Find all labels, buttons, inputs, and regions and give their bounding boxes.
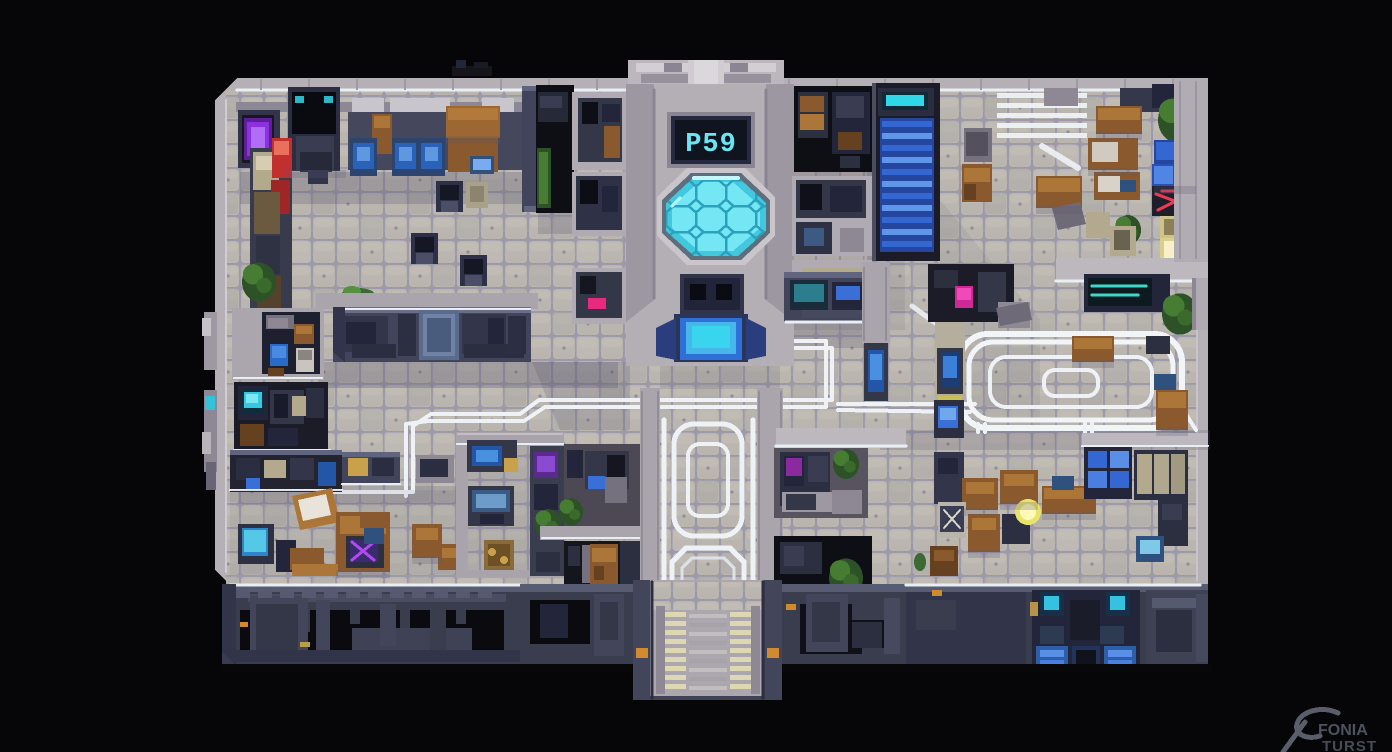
svg-text:FONIA: FONIA <box>1318 722 1368 739</box>
svg-text:P59: P59 <box>685 130 737 160</box>
svg-text:TURST: TURST <box>1322 738 1377 752</box>
